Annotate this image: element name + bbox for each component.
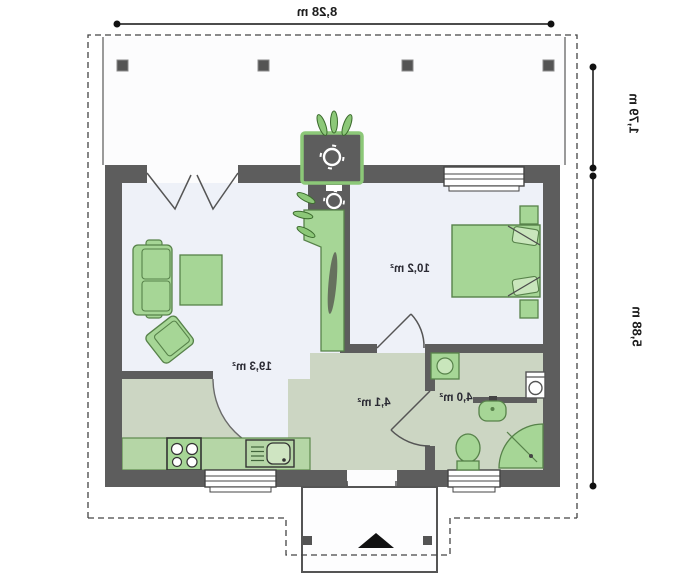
wall-bedroom-bath bbox=[425, 344, 543, 353]
front-door-opening bbox=[347, 470, 397, 487]
dimension-line-house-depth bbox=[590, 173, 597, 490]
dimension-label-porch-depth: 1,79 m bbox=[627, 84, 642, 144]
washing-machine bbox=[431, 353, 459, 379]
stove bbox=[167, 438, 201, 470]
kitchen-sink bbox=[246, 440, 294, 467]
entry-porch bbox=[302, 487, 437, 572]
bathroom-window bbox=[448, 470, 500, 492]
wall-kitchen-stub bbox=[122, 371, 213, 379]
dimension-line-top bbox=[114, 21, 555, 28]
nightstand bbox=[520, 206, 538, 224]
room-area-living: 19,3 m² bbox=[212, 361, 292, 373]
french-door-opening bbox=[147, 165, 238, 183]
sofa bbox=[133, 240, 172, 318]
nightstand bbox=[520, 300, 538, 318]
boiler bbox=[526, 372, 545, 398]
toilet bbox=[456, 434, 480, 470]
coffee-table bbox=[180, 255, 222, 305]
dimension-label-house-depth: 5,88 m bbox=[630, 297, 645, 357]
dimension-label-width: 8,28 m bbox=[277, 4, 357, 19]
porch-post bbox=[423, 536, 432, 545]
dimension-line-porch-depth bbox=[590, 64, 597, 172]
porch-post bbox=[303, 536, 312, 545]
kitchen-counter bbox=[122, 438, 310, 470]
floor-plan: 8,28 m 1,79 m 5,88 m 19,3 m² 10,2 m² 4,1… bbox=[0, 0, 700, 576]
wall-bedroom-hall-left bbox=[340, 344, 377, 353]
room-area-hall: 4,1 m² bbox=[339, 397, 409, 409]
wall-hall-bath-lower bbox=[425, 446, 435, 470]
floor-plan-drawing bbox=[0, 0, 700, 576]
bedroom-window bbox=[444, 167, 524, 191]
room-area-bathroom: 4,0 m² bbox=[421, 392, 491, 404]
room-area-bedroom: 10,2 m² bbox=[370, 263, 450, 275]
kitchen-window bbox=[205, 470, 276, 492]
